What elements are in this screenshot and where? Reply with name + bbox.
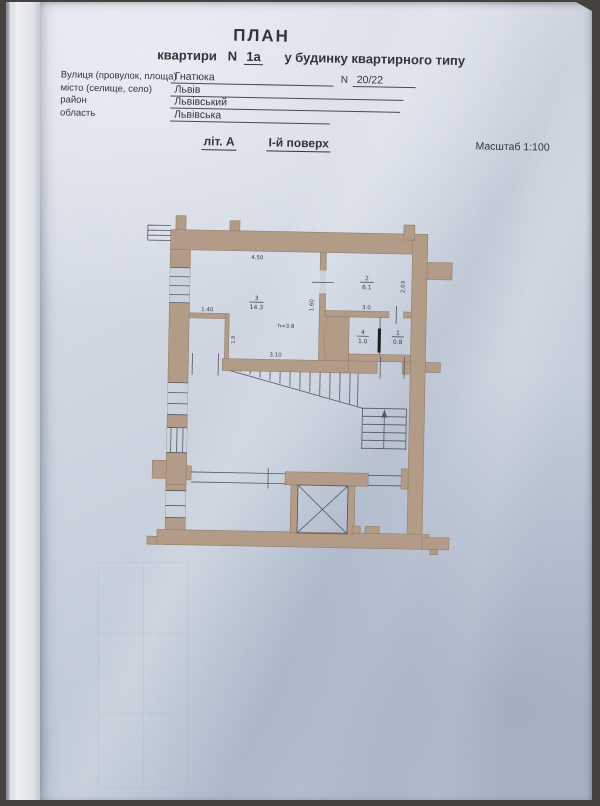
- room1-area: 0.8: [393, 339, 403, 346]
- liter-floor-line: літ. А І-й поверх Масштаб 1:100: [5, 130, 600, 142]
- document-content: ПЛАН квартири N 1а у будинку квартирного…: [0, 0, 600, 806]
- closet-door-ticks: [192, 353, 218, 375]
- dim-room3-bottom: 3.10: [269, 352, 282, 358]
- address-form: Вулиця (провулок, площа) Гнатюка N 20/22…: [60, 69, 441, 126]
- dim-room2-depth: 2.03: [401, 280, 407, 293]
- room2-area: 6.1: [362, 284, 372, 291]
- floor-label: І-й поверх: [266, 135, 331, 152]
- dim-closet-depth: 1.9: [231, 336, 237, 344]
- room3-number: 3: [255, 295, 259, 302]
- district-label: район: [60, 94, 87, 106]
- liter-label: літ. А: [201, 134, 236, 151]
- room3-area: 14.3: [250, 304, 264, 311]
- photo-of-floor-plan-document: { "photo": { "background_color": "#45423…: [0, 0, 600, 800]
- plan-labels: 4.50 3 14.3 h=3.8 3.10 1.60 1.40 1.9 2 6…: [200, 254, 407, 361]
- house-number-label: N: [341, 75, 348, 86]
- room2-number: 2: [365, 275, 369, 282]
- dim-room3-right-opening: 1.60: [309, 299, 315, 312]
- scale-label: Масштаб 1:100: [475, 140, 549, 153]
- subtitle-part1: квартири: [157, 47, 217, 63]
- region-label: область: [60, 107, 95, 119]
- porch-hatch: [148, 225, 171, 240]
- staircase: [229, 371, 407, 450]
- walls: [147, 215, 455, 555]
- floor-plan-drawing: 4.50 3 14.3 h=3.8 3.10 1.60 1.40 1.9 2 6…: [136, 202, 463, 568]
- stair-stringer-diagonal: [229, 371, 363, 409]
- subtitle-part2: у будинку квартирного типу: [284, 50, 465, 68]
- room1-number: 1: [396, 330, 400, 337]
- street-label: Вулиця (провулок, площа): [61, 69, 177, 82]
- subtitle-n-label: N: [228, 49, 238, 64]
- city-label: місто (селище, село): [60, 82, 152, 95]
- stair-treads-winder: [240, 371, 359, 407]
- room4-area: 1.0: [358, 338, 368, 345]
- dim-room3-top: 4.50: [251, 255, 264, 261]
- shaft-cross-lines: [297, 485, 348, 534]
- door-leaf-room4: [378, 328, 381, 352]
- plan-title: ПЛАН: [136, 24, 386, 49]
- region-value: Львівська: [170, 108, 330, 124]
- plan-subtitle: квартири N 1а у будинку квартирного типу: [111, 46, 511, 69]
- stair-direction-arrow: [381, 410, 387, 418]
- elevator-shaft: [297, 485, 348, 534]
- room4-number: 4: [361, 329, 365, 336]
- apartment-number: 1а: [244, 49, 263, 65]
- ceiling-height-note: h=3.8: [278, 324, 295, 330]
- dim-closet-width: 1.40: [201, 307, 214, 313]
- dim-room2-width: 3.0: [362, 305, 371, 311]
